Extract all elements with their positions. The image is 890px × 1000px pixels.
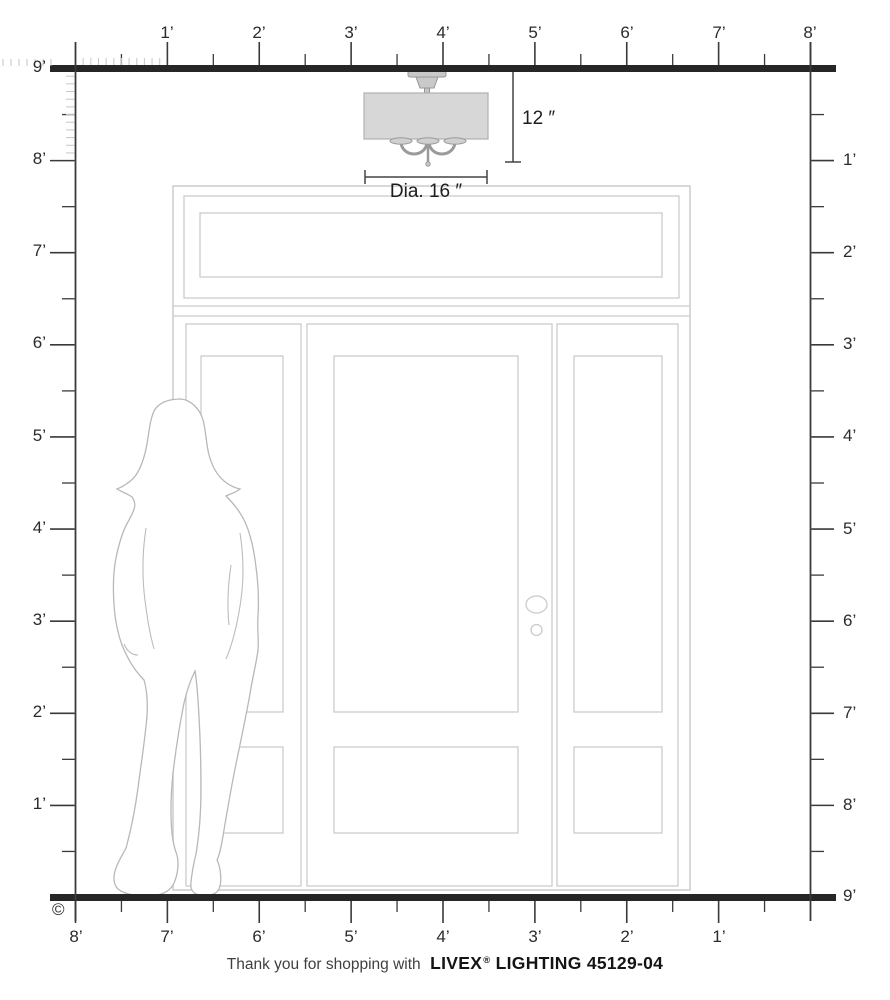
door-lower-panel: [334, 747, 518, 833]
left-axis-label: 6’: [16, 333, 46, 353]
dimension-diagram: 12 ″ Dia. 16 ″: [0, 0, 890, 1000]
transom-window-pane: [200, 213, 662, 277]
left-axis-label: 7’: [16, 241, 46, 261]
right-axis-label: 1’: [843, 150, 856, 170]
right-axis-label: 8’: [843, 795, 856, 815]
top-axis-label: 1’: [160, 23, 173, 43]
door-slab: [307, 324, 552, 886]
bottom-axis-label: 4’: [436, 927, 449, 947]
right-axis-label: 4’: [843, 426, 856, 446]
fixture-canopy-dome: [416, 77, 438, 88]
bottom-axis-label: 5’: [344, 927, 357, 947]
bottom-axis-label: 8’: [69, 927, 82, 947]
fixture-drum-shade: [364, 93, 488, 139]
product-model-number: LIGHTING 45129-04: [496, 953, 664, 973]
left-axis-label: 1’: [16, 794, 46, 814]
right-axis-label: 3’: [843, 334, 856, 354]
left-axis-label: 9’: [16, 57, 46, 77]
top-axis-label: 5’: [528, 23, 541, 43]
left-axis-label: 3’: [16, 610, 46, 630]
brand-name: LIVEX: [430, 953, 482, 973]
bottom-axis-label: 6’: [252, 927, 265, 947]
top-axis-label: 4’: [436, 23, 449, 43]
bottom-axis-label: 2’: [620, 927, 633, 947]
registered-trademark-symbol: ®: [483, 955, 490, 966]
door-upper-panel: [334, 356, 518, 712]
right-axis-label: 6’: [843, 611, 856, 631]
top-axis-label: 2’: [252, 23, 265, 43]
door-knob: [526, 596, 547, 613]
top-axis-label: 8’: [803, 23, 816, 43]
door-keyhole: [531, 625, 542, 636]
fixture-bobeche: [417, 138, 439, 144]
right-sidelight-lower-panel: [574, 747, 662, 833]
right-axis-label: 2’: [843, 242, 856, 262]
top-axis-label: 3’: [344, 23, 357, 43]
light-fixture: [364, 71, 488, 166]
footer-thank-you-text: Thank you for shopping with: [227, 956, 421, 973]
fixture-finial: [426, 162, 430, 166]
bottom-axis-label: 1’: [712, 927, 725, 947]
diameter-dimension-label: Dia. 16 ″: [390, 181, 462, 202]
top-axis-label: 6’: [620, 23, 633, 43]
bottom-axis-label: 7’: [160, 927, 173, 947]
left-axis-label: 4’: [16, 518, 46, 538]
top-axis-label: 7’: [712, 23, 725, 43]
transom-window-frame: [184, 196, 679, 298]
fixture-bobeche: [444, 138, 466, 144]
footer-message: Thank you for shopping with LIVEX® LIGHT…: [0, 953, 890, 974]
right-sidelight-upper-panel: [574, 356, 662, 712]
right-sidelight-frame: [557, 324, 678, 886]
right-axis-label: 9’: [843, 886, 856, 906]
left-axis-label: 5’: [16, 426, 46, 446]
scale-diagram-page: 12 ″ Dia. 16 ″ 1’ 2’ 3’ 4’ 5’ 6’ 7’ 8’ 9…: [0, 0, 890, 1000]
height-dimension-label: 12 ″: [522, 108, 555, 129]
left-axis-label: 8’: [16, 149, 46, 169]
copyright-symbol: ©: [52, 900, 65, 920]
bottom-axis-label: 3’: [528, 927, 541, 947]
fixture-bobeche: [390, 138, 412, 144]
right-axis-label: 5’: [843, 519, 856, 539]
right-axis-label: 7’: [843, 703, 856, 723]
left-axis-label: 2’: [16, 702, 46, 722]
